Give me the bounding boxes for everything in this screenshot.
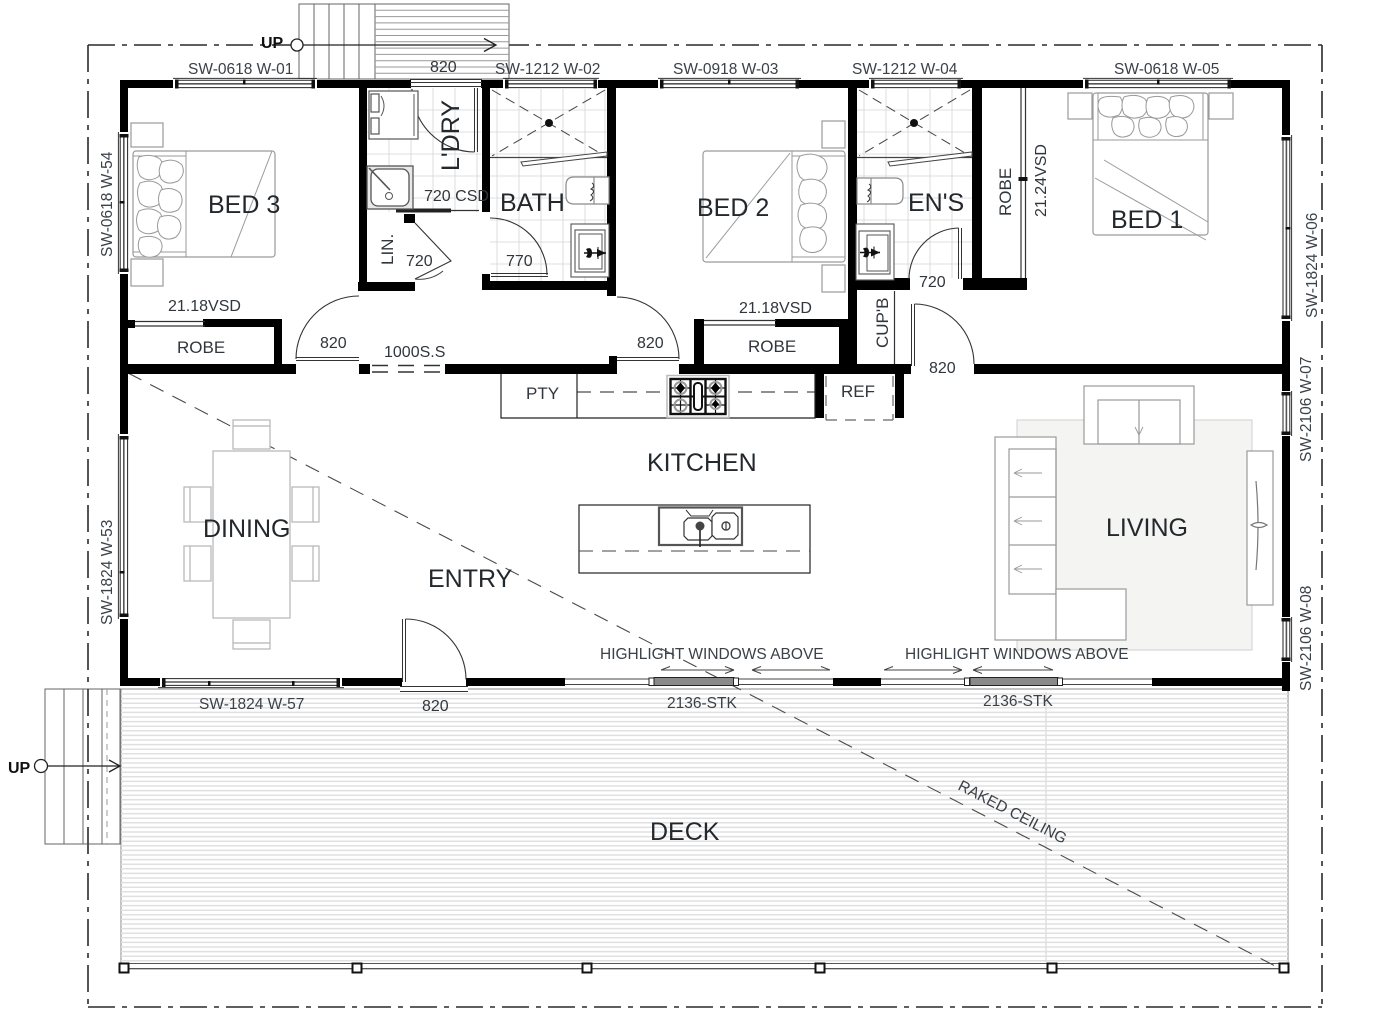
svg-text:820: 820 bbox=[929, 360, 956, 377]
svg-text:DECK: DECK bbox=[650, 818, 720, 846]
svg-text:2136-STK: 2136-STK bbox=[983, 693, 1053, 710]
svg-text:PTY: PTY bbox=[526, 384, 559, 403]
svg-text:ROBE: ROBE bbox=[996, 168, 1015, 216]
svg-text:BATH: BATH bbox=[500, 189, 565, 217]
svg-text:SW-0618 W-54: SW-0618 W-54 bbox=[99, 151, 116, 257]
svg-text:HIGHLIGHT WINDOWS ABOVE: HIGHLIGHT WINDOWS ABOVE bbox=[600, 646, 824, 663]
svg-text:BED 3: BED 3 bbox=[208, 191, 280, 219]
svg-text:1000S.S: 1000S.S bbox=[384, 344, 445, 361]
svg-text:HIGHLIGHT WINDOWS ABOVE: HIGHLIGHT WINDOWS ABOVE bbox=[905, 646, 1129, 663]
svg-text:EN'S: EN'S bbox=[908, 189, 964, 217]
svg-text:720 CSD: 720 CSD bbox=[424, 188, 489, 205]
svg-text:21.18VSD: 21.18VSD bbox=[739, 300, 812, 317]
svg-text:KITCHEN: KITCHEN bbox=[647, 449, 757, 477]
svg-text:SW-1824 W-57: SW-1824 W-57 bbox=[199, 696, 304, 713]
svg-text:SW-1212 W-02: SW-1212 W-02 bbox=[495, 61, 600, 78]
svg-text:REF: REF bbox=[841, 382, 875, 401]
svg-text:820: 820 bbox=[637, 335, 664, 352]
svg-text:LIN.: LIN. bbox=[378, 234, 397, 265]
svg-text:820: 820 bbox=[422, 698, 449, 715]
svg-text:SW-1824 W-06: SW-1824 W-06 bbox=[1304, 213, 1321, 318]
svg-text:ROBE: ROBE bbox=[177, 338, 225, 357]
svg-text:SW-2106 W-07: SW-2106 W-07 bbox=[1298, 357, 1315, 462]
svg-text:820: 820 bbox=[430, 59, 457, 76]
svg-text:DINING: DINING bbox=[203, 515, 291, 543]
svg-text:720: 720 bbox=[919, 274, 946, 291]
svg-text:SW-2106 W-08: SW-2106 W-08 bbox=[1298, 586, 1315, 691]
svg-text:UP: UP bbox=[8, 760, 31, 777]
svg-text:SW-0618 W-05: SW-0618 W-05 bbox=[1114, 61, 1219, 78]
svg-text:2136-STK: 2136-STK bbox=[667, 695, 737, 712]
svg-text:21.18VSD: 21.18VSD bbox=[168, 298, 241, 315]
svg-text:SW-0618 W-01: SW-0618 W-01 bbox=[188, 61, 293, 78]
svg-text:BED 2: BED 2 bbox=[697, 194, 769, 222]
svg-text:L'DRY: L'DRY bbox=[437, 100, 465, 171]
svg-text:SW-1824 W-53: SW-1824 W-53 bbox=[99, 520, 116, 625]
svg-text:SW-1212 W-04: SW-1212 W-04 bbox=[852, 61, 958, 78]
svg-text:UP: UP bbox=[261, 35, 284, 52]
svg-text:ROBE: ROBE bbox=[748, 337, 796, 356]
svg-text:21.24VSD: 21.24VSD bbox=[1033, 144, 1050, 217]
svg-text:SW-0918 W-03: SW-0918 W-03 bbox=[673, 61, 778, 78]
svg-text:820: 820 bbox=[320, 335, 347, 352]
svg-text:BED 1: BED 1 bbox=[1111, 206, 1183, 234]
svg-text:ENTRY: ENTRY bbox=[428, 565, 513, 593]
svg-text:720: 720 bbox=[406, 253, 433, 270]
svg-text:770: 770 bbox=[506, 253, 533, 270]
svg-text:LIVING: LIVING bbox=[1106, 514, 1188, 542]
svg-text:CUP'B: CUP'B bbox=[873, 298, 892, 348]
